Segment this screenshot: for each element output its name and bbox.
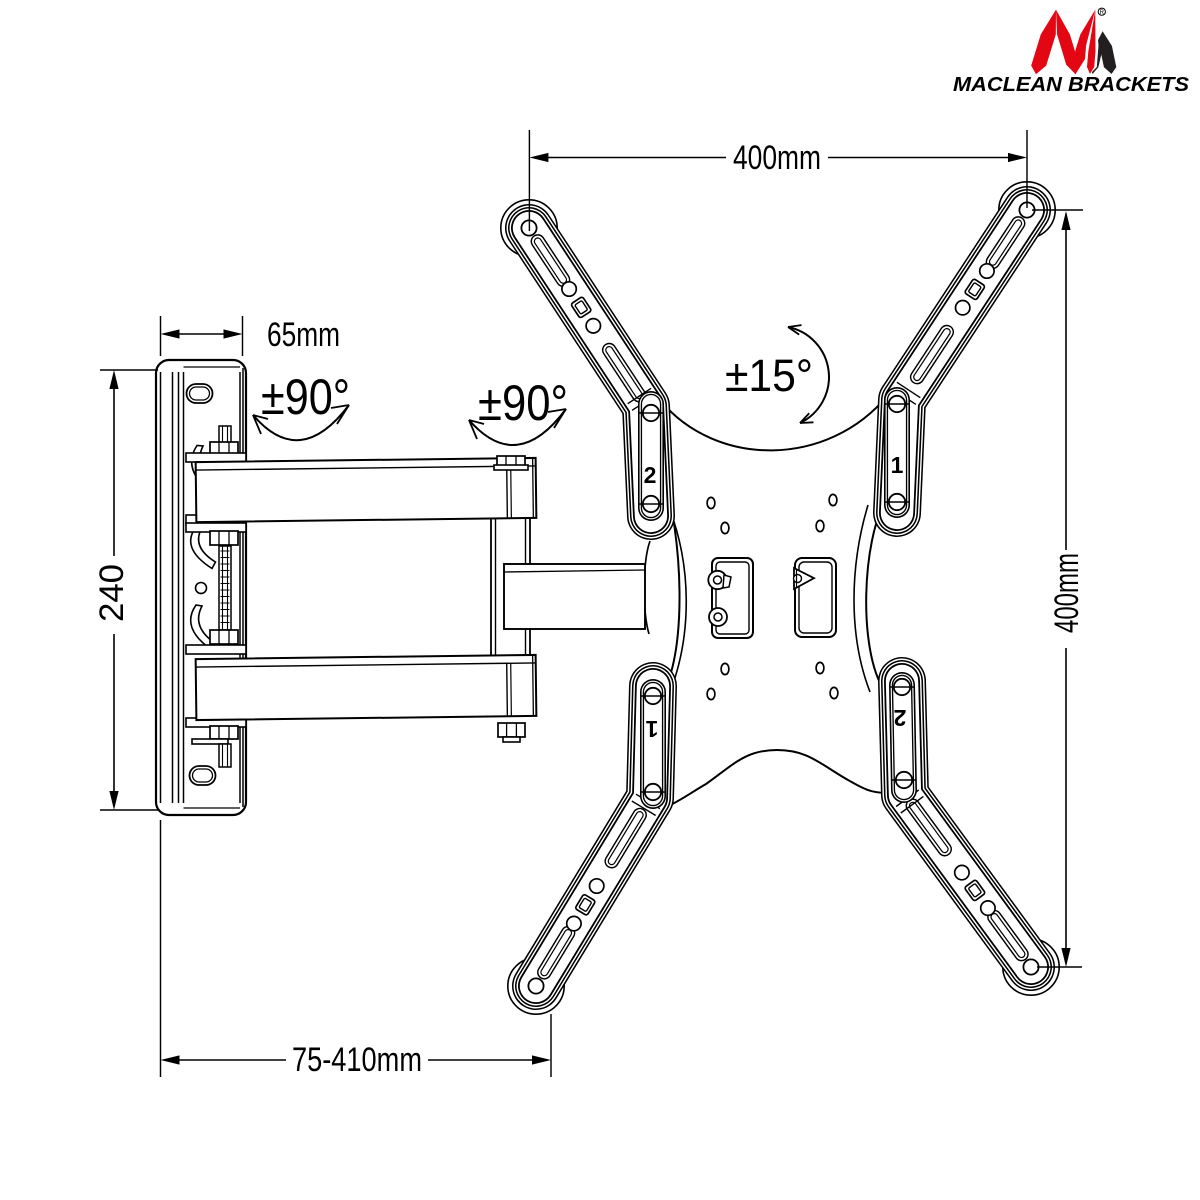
svg-text:R: R — [1100, 10, 1105, 16]
svg-text:400mm: 400mm — [733, 139, 821, 177]
svg-text:±90°: ±90° — [261, 369, 350, 425]
svg-text:65mm: 65mm — [267, 316, 340, 354]
svg-text:75-410mm: 75-410mm — [292, 1041, 422, 1079]
svg-text:±15°: ±15° — [725, 350, 813, 401]
svg-text:240: 240 — [93, 564, 131, 622]
svg-text:2: 2 — [644, 462, 657, 488]
svg-text:1: 1 — [891, 452, 904, 478]
svg-text:1: 1 — [645, 716, 658, 742]
svg-text:2: 2 — [894, 705, 907, 731]
svg-text:400mm: 400mm — [1048, 553, 1086, 633]
svg-text:MACLEAN BRACKETS: MACLEAN BRACKETS — [953, 74, 1190, 96]
